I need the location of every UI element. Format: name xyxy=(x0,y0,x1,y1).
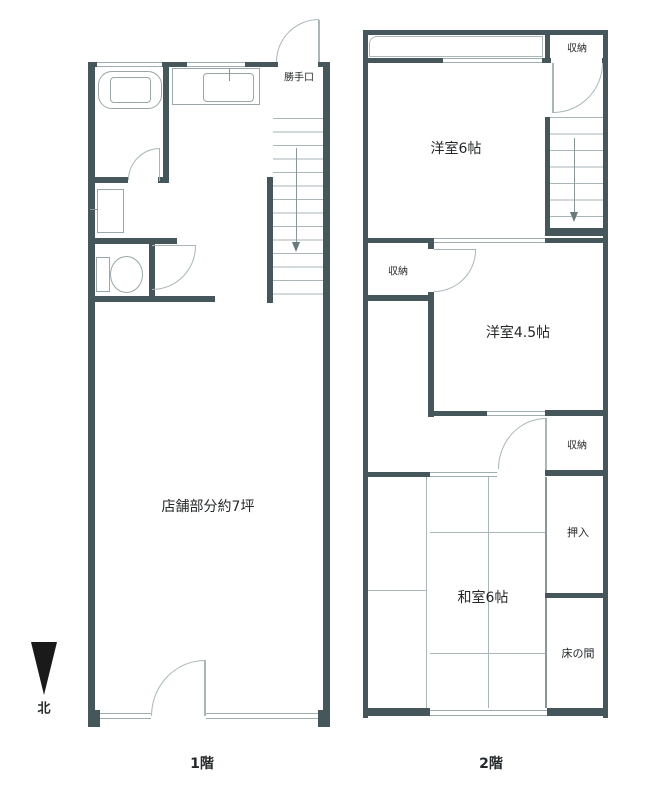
wall xyxy=(545,410,608,416)
stairs-direction-line xyxy=(296,148,297,244)
floor2-caption: 2階 xyxy=(479,753,503,773)
storefront-glass xyxy=(97,713,321,719)
stairs-down-arrow-icon xyxy=(292,242,300,252)
wall xyxy=(88,710,100,727)
wall xyxy=(545,228,608,236)
wall xyxy=(428,411,487,416)
door-arc xyxy=(152,246,196,290)
wall xyxy=(363,295,432,301)
window xyxy=(443,58,542,63)
wall xyxy=(545,470,608,476)
wall xyxy=(88,296,215,302)
veranda-line xyxy=(426,477,427,708)
bathtub-inner xyxy=(110,77,151,103)
label-oshiire: 押入 xyxy=(567,524,589,540)
stairs-direction-line xyxy=(574,138,575,214)
sliding-door xyxy=(432,238,545,243)
label-western-room-6: 洋室6帖 xyxy=(431,138,482,158)
label-north: 北 xyxy=(37,698,50,717)
wall xyxy=(363,58,443,63)
door-arc xyxy=(434,250,476,292)
wall xyxy=(88,238,177,244)
door-arc xyxy=(498,418,546,469)
vanity-sink xyxy=(97,189,124,233)
wall xyxy=(163,62,169,180)
door-arc xyxy=(553,63,603,113)
stairs-down-arrow-icon xyxy=(570,212,578,222)
floor-plan-canvas: 勝手口 店舗部分約7坪 北 1階 収納 洋室6帖 xyxy=(0,0,663,800)
label-closet-mid: 収納 xyxy=(388,263,408,278)
label-store-area: 店舗部分約7坪 xyxy=(162,496,255,516)
label-japanese-room-6: 和室6帖 xyxy=(458,587,509,607)
stairs xyxy=(273,118,323,299)
wall xyxy=(545,593,608,598)
wall xyxy=(318,710,330,727)
window xyxy=(187,62,245,67)
balcony xyxy=(369,36,543,57)
wall xyxy=(363,708,430,716)
door-arc xyxy=(151,660,205,716)
toilet-bowl xyxy=(110,256,143,293)
label-back-door: 勝手口 xyxy=(284,69,314,84)
veranda-line xyxy=(368,590,426,591)
north-arrow-icon xyxy=(31,642,57,695)
wall xyxy=(323,62,330,727)
wall xyxy=(363,472,430,477)
window xyxy=(487,411,545,416)
vanity-tap-icon xyxy=(90,209,97,210)
door-arc xyxy=(276,19,319,62)
wall xyxy=(267,177,273,303)
label-closet-low: 収納 xyxy=(567,437,587,452)
toilet-tank xyxy=(96,257,110,292)
wall xyxy=(363,30,608,35)
wall xyxy=(88,62,95,727)
wall xyxy=(245,62,278,67)
wall xyxy=(88,177,128,183)
wall xyxy=(363,238,432,243)
label-western-room-45: 洋室4.5帖 xyxy=(486,322,550,342)
sliding-door xyxy=(430,472,497,477)
label-closet-top: 収納 xyxy=(567,40,587,55)
wall xyxy=(545,117,550,236)
wall xyxy=(603,30,608,718)
window xyxy=(97,62,162,67)
closet-front-line xyxy=(545,477,547,593)
closet-front-line xyxy=(545,598,547,708)
door-arc xyxy=(128,148,160,180)
faucet-icon xyxy=(229,68,230,81)
label-tokonoma: 床の間 xyxy=(562,645,595,661)
wall xyxy=(545,238,608,243)
wall xyxy=(547,708,608,716)
floor1-caption: 1階 xyxy=(190,753,214,773)
wall xyxy=(363,30,368,718)
window xyxy=(430,710,547,716)
